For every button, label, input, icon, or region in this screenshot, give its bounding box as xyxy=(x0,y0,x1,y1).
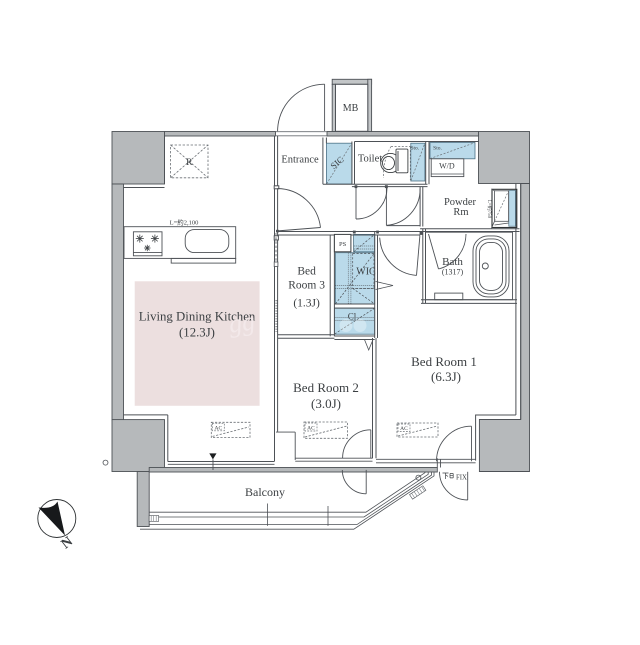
svg-text:Rm: Rm xyxy=(453,207,468,218)
svg-text:L=約2,100: L=約2,100 xyxy=(170,218,199,227)
svg-text:AC: AC xyxy=(214,425,222,431)
svg-text:FIX: FIX xyxy=(456,475,467,482)
svg-text:(6.3J): (6.3J) xyxy=(431,369,461,384)
svg-text:(1317): (1317) xyxy=(442,268,464,277)
svg-text:(12.3J): (12.3J) xyxy=(179,326,215,340)
svg-text:W/D: W/D xyxy=(439,162,455,171)
svg-text:Room 3: Room 3 xyxy=(288,280,325,292)
svg-text:R: R xyxy=(186,158,193,168)
svg-text:gg: gg xyxy=(227,306,257,338)
svg-text:(3.0J): (3.0J) xyxy=(311,396,341,411)
svg-text:Bed Room 1: Bed Room 1 xyxy=(411,354,477,369)
svg-text:Toilet: Toilet xyxy=(358,154,382,165)
svg-text:PS: PS xyxy=(339,241,347,248)
svg-text:Bed: Bed xyxy=(297,266,316,278)
svg-text:L=約750: L=約750 xyxy=(486,200,493,219)
svg-text:Bath: Bath xyxy=(442,256,463,268)
svg-text:Entrance: Entrance xyxy=(281,155,319,166)
svg-text:MB: MB xyxy=(343,103,359,114)
svg-text:AC: AC xyxy=(400,426,408,432)
svg-text:Sto.: Sto. xyxy=(410,146,419,152)
svg-text:Balcony: Balcony xyxy=(245,485,285,499)
svg-text:(1.3J): (1.3J) xyxy=(293,298,320,310)
svg-text:WIC: WIC xyxy=(356,267,376,278)
svg-text:AC: AC xyxy=(307,426,315,432)
svg-text:Cl: Cl xyxy=(348,312,357,322)
svg-text:Bed Room 2: Bed Room 2 xyxy=(293,380,359,395)
svg-text:Sto.: Sto. xyxy=(433,146,442,152)
